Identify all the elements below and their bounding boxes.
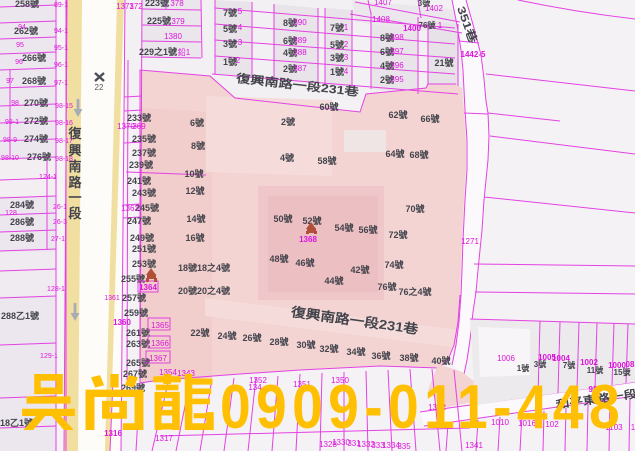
svg-text:97-1: 97-1 — [54, 80, 68, 87]
svg-text:1380: 1380 — [164, 32, 182, 41]
svg-text:18號18之4號: 18號18之4號 — [178, 262, 230, 273]
svg-text:2: 2 — [236, 56, 241, 65]
svg-text:128-1: 128-1 — [47, 286, 65, 293]
svg-text:1408: 1408 — [372, 15, 390, 24]
svg-text:259號: 259號 — [124, 307, 148, 318]
svg-text:97: 97 — [6, 78, 14, 85]
svg-text:98-15: 98-15 — [55, 103, 73, 110]
svg-text:66號: 66號 — [420, 113, 439, 124]
svg-text:396: 396 — [390, 61, 404, 70]
svg-text:6號: 6號 — [190, 117, 204, 128]
svg-text:2: 2 — [344, 40, 349, 49]
svg-text:1000: 1000 — [608, 361, 626, 370]
svg-text:27-1: 27-1 — [51, 236, 65, 243]
svg-text:1號: 1號 — [517, 363, 529, 373]
svg-text:286號: 286號 — [10, 216, 34, 227]
svg-text:387: 387 — [293, 64, 307, 73]
svg-text:98-1: 98-1 — [5, 119, 19, 126]
svg-text:223號: 223號 — [145, 0, 169, 8]
svg-text:1: 1 — [438, 21, 443, 30]
svg-text:1368: 1368 — [299, 235, 317, 244]
svg-text:1271: 1271 — [461, 237, 479, 246]
svg-text:1366: 1366 — [151, 339, 169, 348]
svg-text:270號: 270號 — [24, 97, 48, 108]
svg-text:2號: 2號 — [281, 116, 295, 127]
svg-text:50號: 50號 — [273, 213, 292, 224]
svg-text:1407: 1407 — [374, 0, 392, 7]
svg-text:225號: 225號 — [147, 15, 171, 26]
svg-text:1364: 1364 — [139, 283, 157, 292]
svg-text:266號: 266號 — [22, 52, 46, 63]
svg-text:48號: 48號 — [269, 253, 288, 264]
svg-text:276號: 276號 — [27, 151, 51, 162]
svg-text:263號: 263號 — [126, 338, 150, 349]
svg-text:08: 08 — [626, 360, 635, 369]
svg-text:390: 390 — [293, 18, 307, 27]
svg-text:397: 397 — [390, 47, 404, 56]
svg-text:8號: 8號 — [191, 140, 205, 151]
svg-text:1363: 1363 — [121, 204, 139, 213]
svg-text:28號: 28號 — [269, 336, 288, 347]
svg-text:94-1: 94-1 — [54, 28, 68, 35]
svg-text:64號: 64號 — [385, 148, 404, 159]
svg-text:路: 路 — [68, 175, 82, 190]
svg-text:22: 22 — [95, 83, 104, 92]
svg-text:32號: 32號 — [319, 343, 338, 354]
svg-text:5: 5 — [238, 7, 243, 16]
svg-text:288號: 288號 — [10, 232, 34, 243]
svg-text:26-1: 26-1 — [53, 204, 67, 211]
svg-text:239號: 239號 — [129, 159, 153, 170]
svg-text:1402: 1402 — [425, 4, 443, 13]
svg-text:398: 398 — [390, 33, 404, 42]
svg-text:1367: 1367 — [149, 354, 167, 363]
svg-text:261號: 261號 — [126, 327, 150, 338]
svg-text:379: 379 — [171, 17, 185, 26]
svg-text:0909-011-448: 0909-011-448 — [220, 373, 625, 442]
svg-text:1360: 1360 — [113, 318, 131, 327]
svg-text:129-1: 129-1 — [40, 353, 58, 360]
svg-text:3號: 3號 — [223, 38, 237, 49]
svg-text:76號: 76號 — [419, 20, 436, 30]
svg-text:56號: 56號 — [358, 224, 377, 235]
svg-text:389: 389 — [293, 36, 307, 45]
svg-text:一: 一 — [68, 190, 81, 205]
svg-text:98-18: 98-18 — [55, 156, 73, 163]
svg-text:14號: 14號 — [186, 213, 205, 224]
svg-text:258號: 258號 — [15, 0, 39, 9]
svg-text:70號: 70號 — [405, 203, 424, 214]
svg-text:21號: 21號 — [434, 57, 453, 68]
svg-text:5號: 5號 — [223, 23, 237, 34]
svg-text:251號: 251號 — [132, 243, 156, 254]
svg-text:369: 369 — [132, 122, 146, 131]
svg-text:46號: 46號 — [295, 257, 314, 268]
svg-text:40號: 40號 — [431, 355, 450, 366]
svg-text:96-1: 96-1 — [54, 62, 68, 69]
svg-text:1316: 1316 — [104, 429, 122, 438]
svg-text:1006: 1006 — [497, 354, 515, 363]
svg-text:229之1號: 229之1號 — [139, 46, 177, 57]
svg-text:1: 1 — [344, 23, 349, 32]
svg-text:1: 1 — [631, 423, 635, 432]
svg-text:62號: 62號 — [388, 109, 407, 120]
svg-text:98: 98 — [11, 100, 19, 107]
svg-text:372: 372 — [129, 2, 143, 11]
svg-text:98-9: 98-9 — [3, 137, 17, 144]
svg-text:89-1: 89-1 — [54, 2, 68, 9]
svg-text:128: 128 — [5, 210, 17, 217]
svg-text:284號: 284號 — [10, 199, 34, 210]
svg-text:34號: 34號 — [346, 346, 365, 357]
svg-text:68號: 68號 — [409, 149, 428, 160]
svg-text:94: 94 — [18, 24, 26, 31]
svg-text:272號: 272號 — [24, 115, 48, 126]
svg-text:24號: 24號 — [217, 330, 236, 341]
svg-text:72號: 72號 — [388, 229, 407, 240]
svg-text:38號: 38號 — [399, 352, 418, 363]
svg-text:3: 3 — [344, 53, 349, 62]
svg-text:16號: 16號 — [185, 232, 204, 243]
svg-text:378: 378 — [170, 0, 184, 8]
svg-text:98-10: 98-10 — [1, 155, 19, 162]
svg-text:268號: 268號 — [22, 75, 46, 86]
svg-text:12號: 12號 — [185, 185, 204, 196]
svg-text:3號: 3號 — [330, 52, 344, 63]
svg-text:74號: 74號 — [384, 259, 403, 270]
svg-text:1號: 1號 — [330, 66, 344, 77]
svg-text:4: 4 — [238, 23, 243, 32]
svg-text:388: 388 — [293, 48, 307, 57]
svg-text:4: 4 — [344, 67, 349, 76]
svg-text:1361: 1361 — [104, 295, 120, 302]
svg-text:1365: 1365 — [151, 321, 169, 330]
svg-text:26號: 26號 — [242, 332, 261, 343]
svg-text:257號: 257號 — [122, 292, 146, 303]
svg-text:1442-5: 1442-5 — [461, 50, 486, 59]
svg-text:1400: 1400 — [403, 24, 421, 33]
svg-text:鉛1: 鉛1 — [178, 47, 191, 57]
svg-text:96: 96 — [15, 59, 23, 66]
svg-text:36號: 36號 — [371, 350, 390, 361]
svg-text:4號: 4號 — [280, 152, 294, 163]
svg-text:249號: 249號 — [130, 232, 154, 243]
svg-text:247號: 247號 — [127, 215, 151, 226]
svg-text:1317: 1317 — [155, 434, 173, 443]
svg-text:44號: 44號 — [324, 275, 343, 286]
svg-text:76之4號: 76之4號 — [398, 286, 431, 297]
svg-text:98-17: 98-17 — [55, 138, 73, 145]
svg-text:124-1: 124-1 — [39, 174, 57, 181]
svg-text:22號: 22號 — [190, 327, 209, 338]
svg-text:42號: 42號 — [350, 264, 369, 275]
svg-text:253號: 253號 — [132, 258, 156, 269]
svg-text:54號: 54號 — [334, 222, 353, 233]
svg-text:1004: 1004 — [552, 354, 570, 363]
svg-text:98-16: 98-16 — [55, 120, 73, 127]
svg-text:395: 395 — [390, 75, 404, 84]
svg-text:20號20之4號: 20號20之4號 — [178, 285, 230, 296]
svg-text:237號: 237號 — [132, 147, 156, 158]
svg-text:30號: 30號 — [296, 339, 315, 350]
svg-text:1341: 1341 — [465, 441, 483, 450]
svg-text:7號: 7號 — [223, 7, 237, 18]
svg-text:243號: 243號 — [132, 187, 156, 198]
svg-text:335: 335 — [397, 442, 411, 451]
svg-text:76號: 76號 — [377, 281, 396, 292]
svg-text:7號: 7號 — [330, 22, 344, 33]
svg-text:段: 段 — [68, 206, 81, 221]
svg-text:58號: 58號 — [317, 155, 336, 166]
svg-text:10號: 10號 — [184, 168, 203, 179]
svg-text:288乙1號: 288乙1號 — [1, 310, 39, 321]
svg-text:5號: 5號 — [330, 39, 344, 50]
svg-text:274號: 274號 — [24, 133, 48, 144]
svg-text:1002: 1002 — [580, 358, 598, 367]
svg-text:95: 95 — [16, 42, 24, 49]
svg-text:235號: 235號 — [132, 133, 156, 144]
svg-text:241號: 241號 — [127, 175, 151, 186]
svg-text:60號: 60號 — [319, 101, 338, 112]
svg-text:95-1: 95-1 — [54, 45, 68, 52]
svg-text:26-3: 26-3 — [53, 219, 67, 226]
svg-text:3: 3 — [238, 38, 243, 47]
